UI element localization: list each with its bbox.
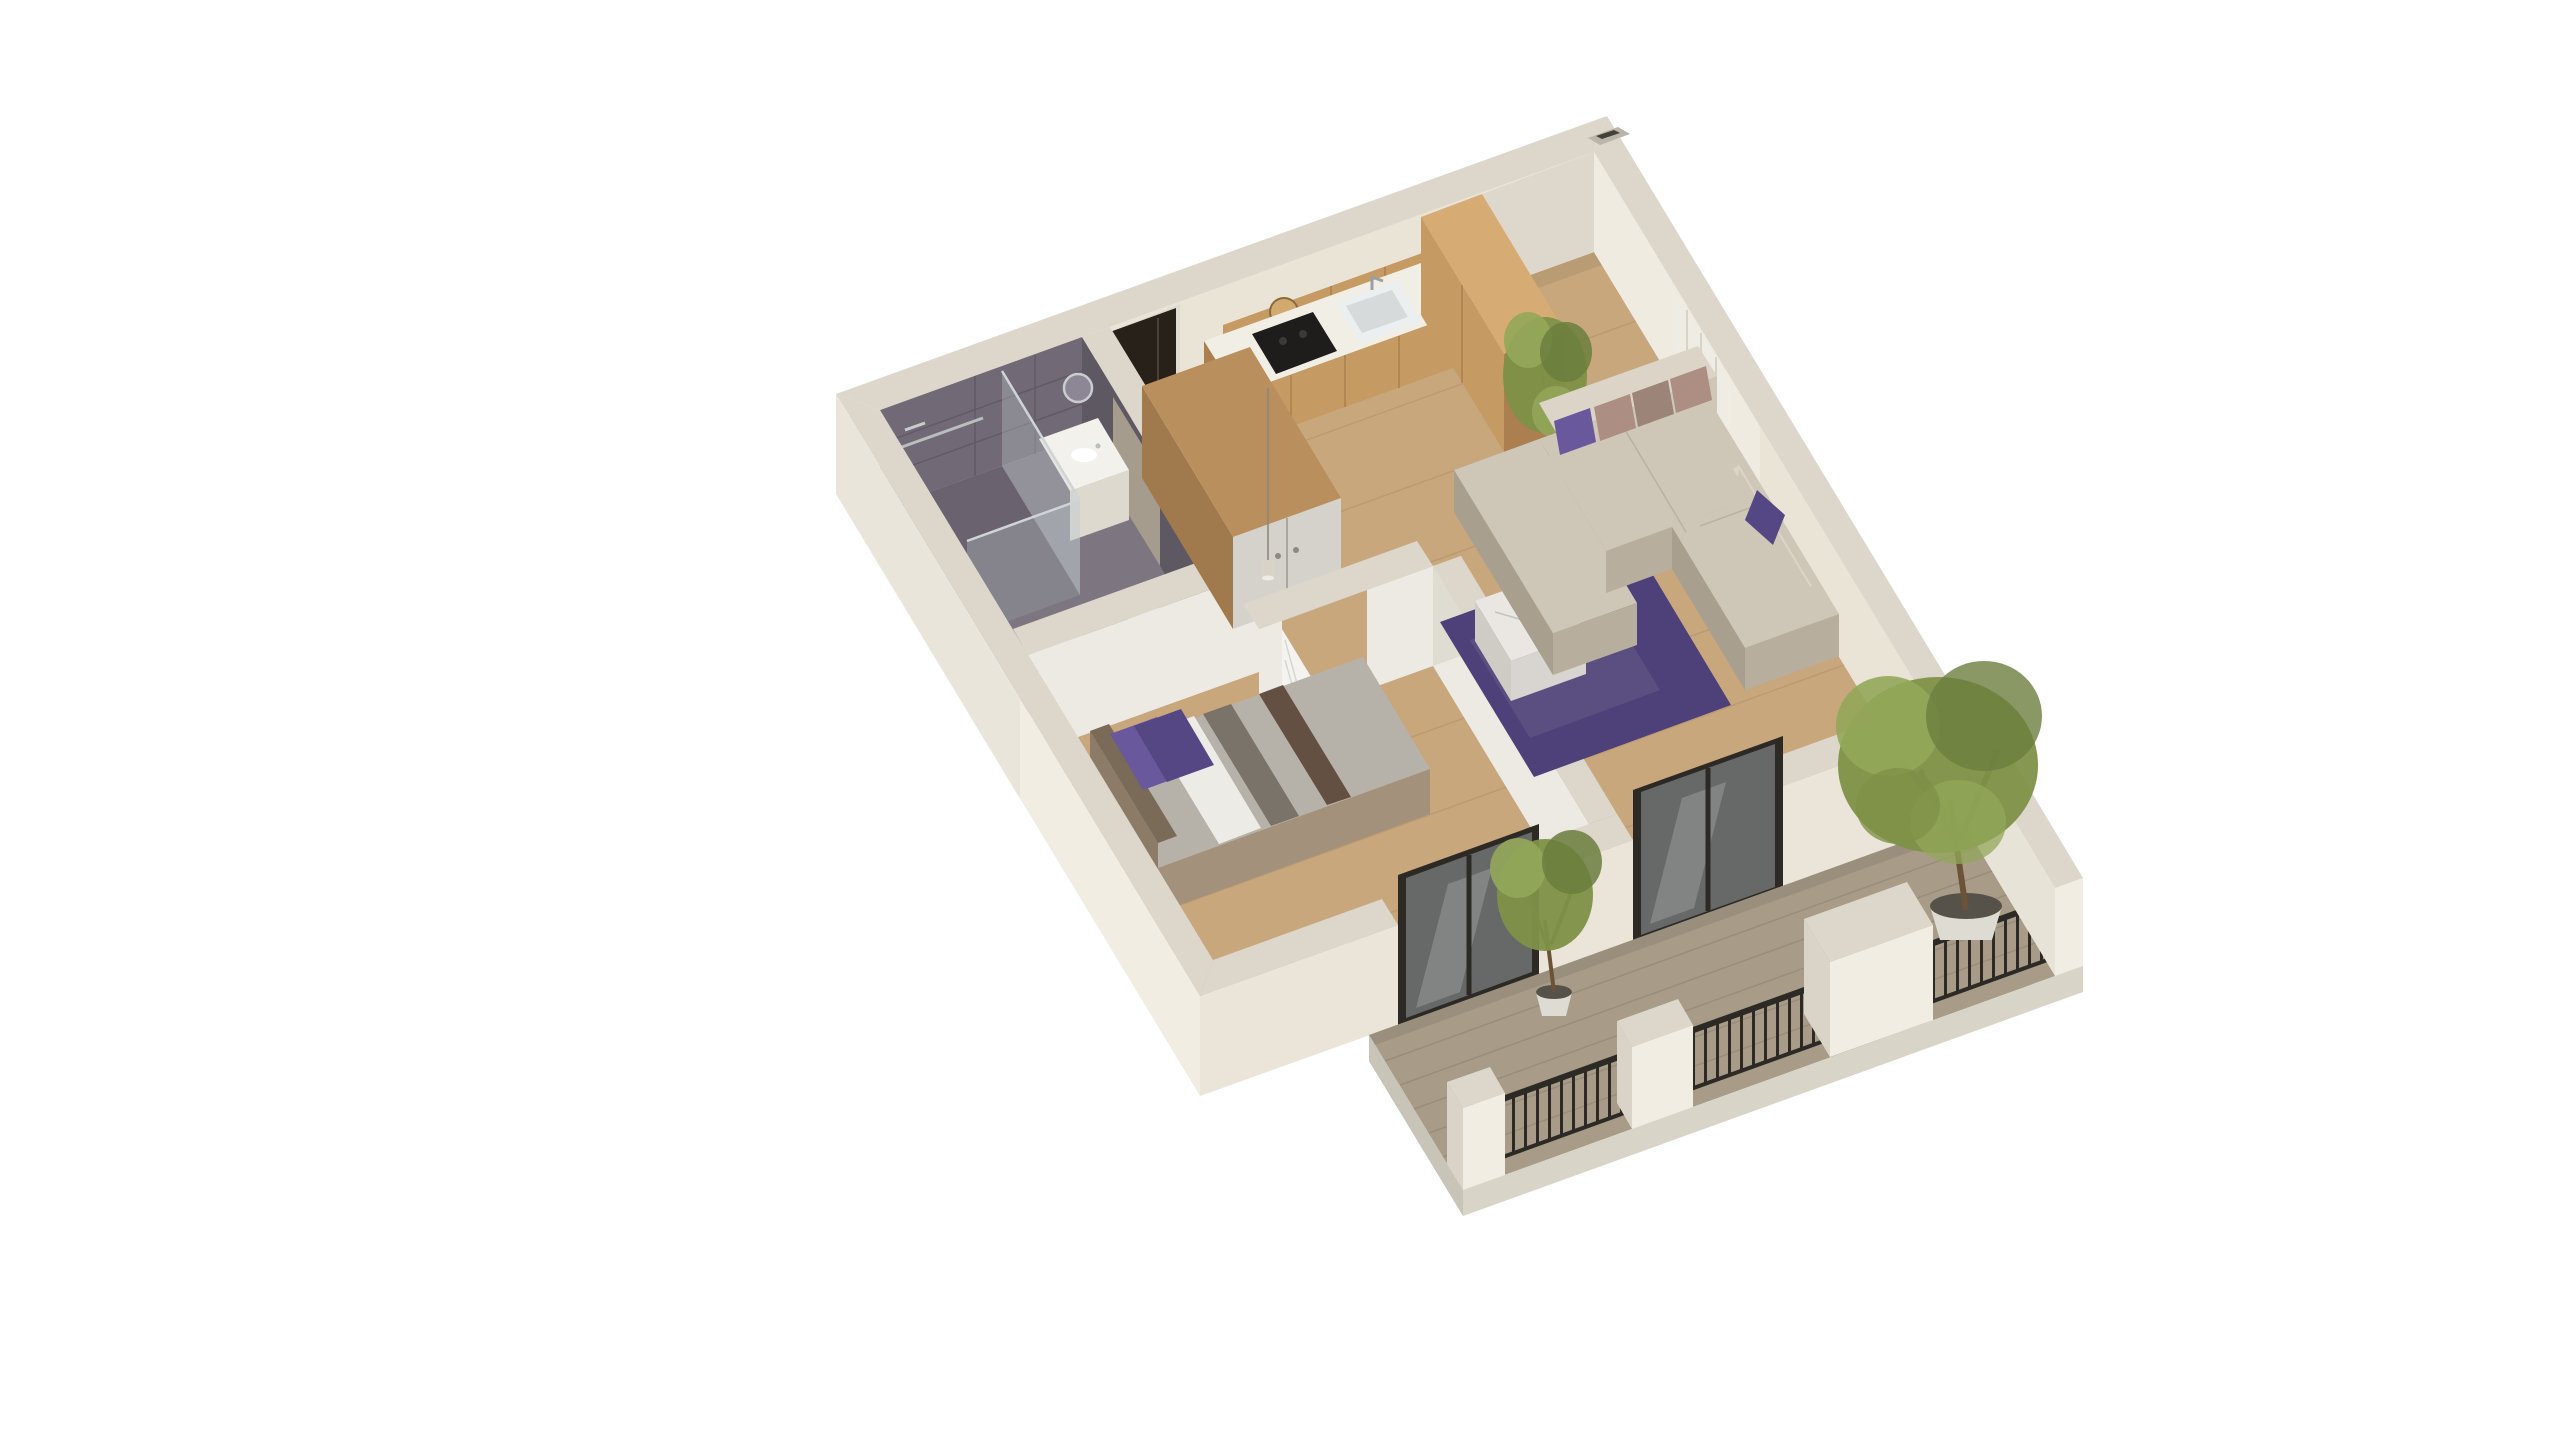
page-background [0,0,2560,1440]
pillar-west [1447,1067,1505,1190]
floor-plan-render [0,0,2560,1440]
round-mirror [1064,374,1092,402]
pillar-mid [1617,999,1693,1129]
